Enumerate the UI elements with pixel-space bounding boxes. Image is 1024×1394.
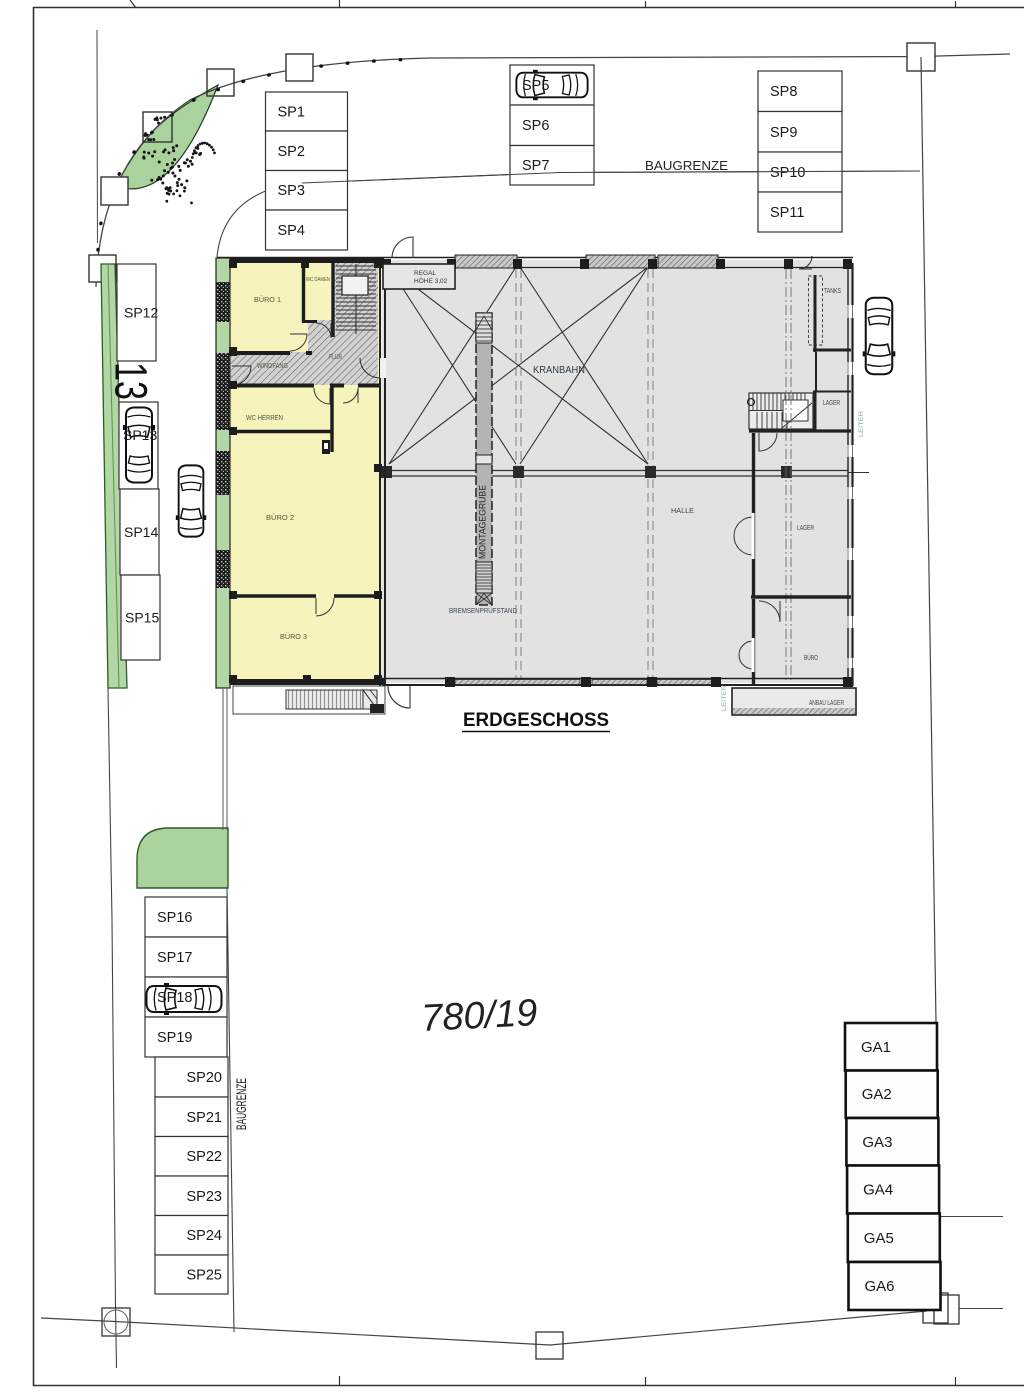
svg-text:SP4: SP4 bbox=[278, 223, 305, 239]
svg-text:SP20: SP20 bbox=[187, 1070, 222, 1086]
svg-text:GA6: GA6 bbox=[865, 1278, 895, 1295]
svg-text:GA2: GA2 bbox=[862, 1086, 892, 1103]
svg-text:WINDFANG: WINDFANG bbox=[257, 363, 288, 370]
svg-text:GA1: GA1 bbox=[861, 1039, 891, 1056]
svg-text:GA3: GA3 bbox=[862, 1134, 892, 1151]
svg-text:KRANBAHN: KRANBAHN bbox=[533, 364, 585, 376]
svg-text:SP15: SP15 bbox=[125, 610, 159, 626]
svg-text:TANKS: TANKS bbox=[824, 288, 841, 295]
svg-text:780/19: 780/19 bbox=[420, 992, 538, 1040]
svg-text:SP14: SP14 bbox=[124, 524, 158, 540]
svg-text:SP25: SP25 bbox=[187, 1268, 222, 1284]
svg-text:GA4: GA4 bbox=[863, 1182, 893, 1199]
svg-text:SP11: SP11 bbox=[770, 205, 804, 221]
svg-text:SP21: SP21 bbox=[187, 1110, 222, 1126]
svg-text:SP7: SP7 bbox=[522, 158, 549, 174]
svg-text:LAGER: LAGER bbox=[797, 525, 814, 532]
svg-text:SP24: SP24 bbox=[187, 1228, 222, 1244]
svg-text:SP10: SP10 bbox=[770, 165, 805, 181]
svg-text:SP1: SP1 bbox=[278, 105, 305, 121]
svg-text:BAUGRENZE: BAUGRENZE bbox=[645, 158, 728, 173]
svg-text:SP8: SP8 bbox=[770, 84, 797, 100]
svg-text:ANBAU LAGER: ANBAU LAGER bbox=[809, 700, 844, 707]
svg-text:BAUGRENZE: BAUGRENZE bbox=[233, 1078, 249, 1130]
svg-text:BÜRO: BÜRO bbox=[804, 654, 818, 662]
svg-text:BREMSENPRÜFSTAND: BREMSENPRÜFSTAND bbox=[449, 607, 517, 615]
svg-text:SP23: SP23 bbox=[187, 1189, 222, 1205]
svg-text:13: 13 bbox=[106, 362, 157, 400]
svg-text:SP6: SP6 bbox=[522, 118, 549, 134]
svg-text:SP18: SP18 bbox=[157, 990, 192, 1006]
svg-text:SP5: SP5 bbox=[522, 78, 549, 94]
svg-text:MONTAGEGRUBE: MONTAGEGRUBE bbox=[478, 485, 488, 559]
svg-text:GA5: GA5 bbox=[864, 1230, 894, 1247]
svg-text:SP13: SP13 bbox=[123, 427, 157, 443]
svg-text:SP17: SP17 bbox=[157, 950, 192, 966]
svg-text:HALLE: HALLE bbox=[671, 506, 694, 515]
svg-text:WC DAMEN: WC DAMEN bbox=[306, 277, 330, 283]
svg-text:SP12: SP12 bbox=[124, 305, 158, 321]
svg-text:SP22: SP22 bbox=[187, 1149, 222, 1165]
svg-text:HÖHE 3,02: HÖHE 3,02 bbox=[414, 277, 448, 285]
svg-text:ERDGESCHOSS: ERDGESCHOSS bbox=[463, 709, 609, 731]
svg-text:SP16: SP16 bbox=[157, 910, 192, 926]
svg-text:LEITER: LEITER bbox=[721, 685, 728, 711]
svg-text:LEITER: LEITER bbox=[858, 411, 865, 437]
svg-text:BÜRO 2: BÜRO 2 bbox=[266, 514, 294, 522]
svg-text:SP9: SP9 bbox=[770, 125, 797, 141]
svg-text:REGAL: REGAL bbox=[414, 270, 436, 277]
svg-text:SP3: SP3 bbox=[278, 183, 305, 199]
svg-text:BÜRO 1: BÜRO 1 bbox=[254, 296, 281, 304]
svg-text:LAGER: LAGER bbox=[823, 400, 840, 407]
svg-text:SP19: SP19 bbox=[157, 1030, 192, 1046]
svg-text:WC HERREN: WC HERREN bbox=[246, 415, 283, 422]
svg-text:FLUR: FLUR bbox=[329, 354, 342, 361]
svg-text:SP2: SP2 bbox=[278, 144, 305, 160]
svg-text:BÜRO 3: BÜRO 3 bbox=[280, 633, 307, 641]
